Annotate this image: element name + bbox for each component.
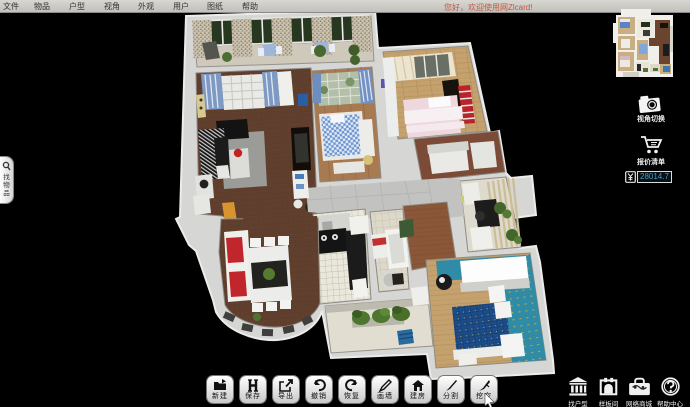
svg-text:找: 找 [3,172,10,181]
svg-text:物: 物 [3,180,10,189]
svg-text:品: 品 [3,189,10,197]
